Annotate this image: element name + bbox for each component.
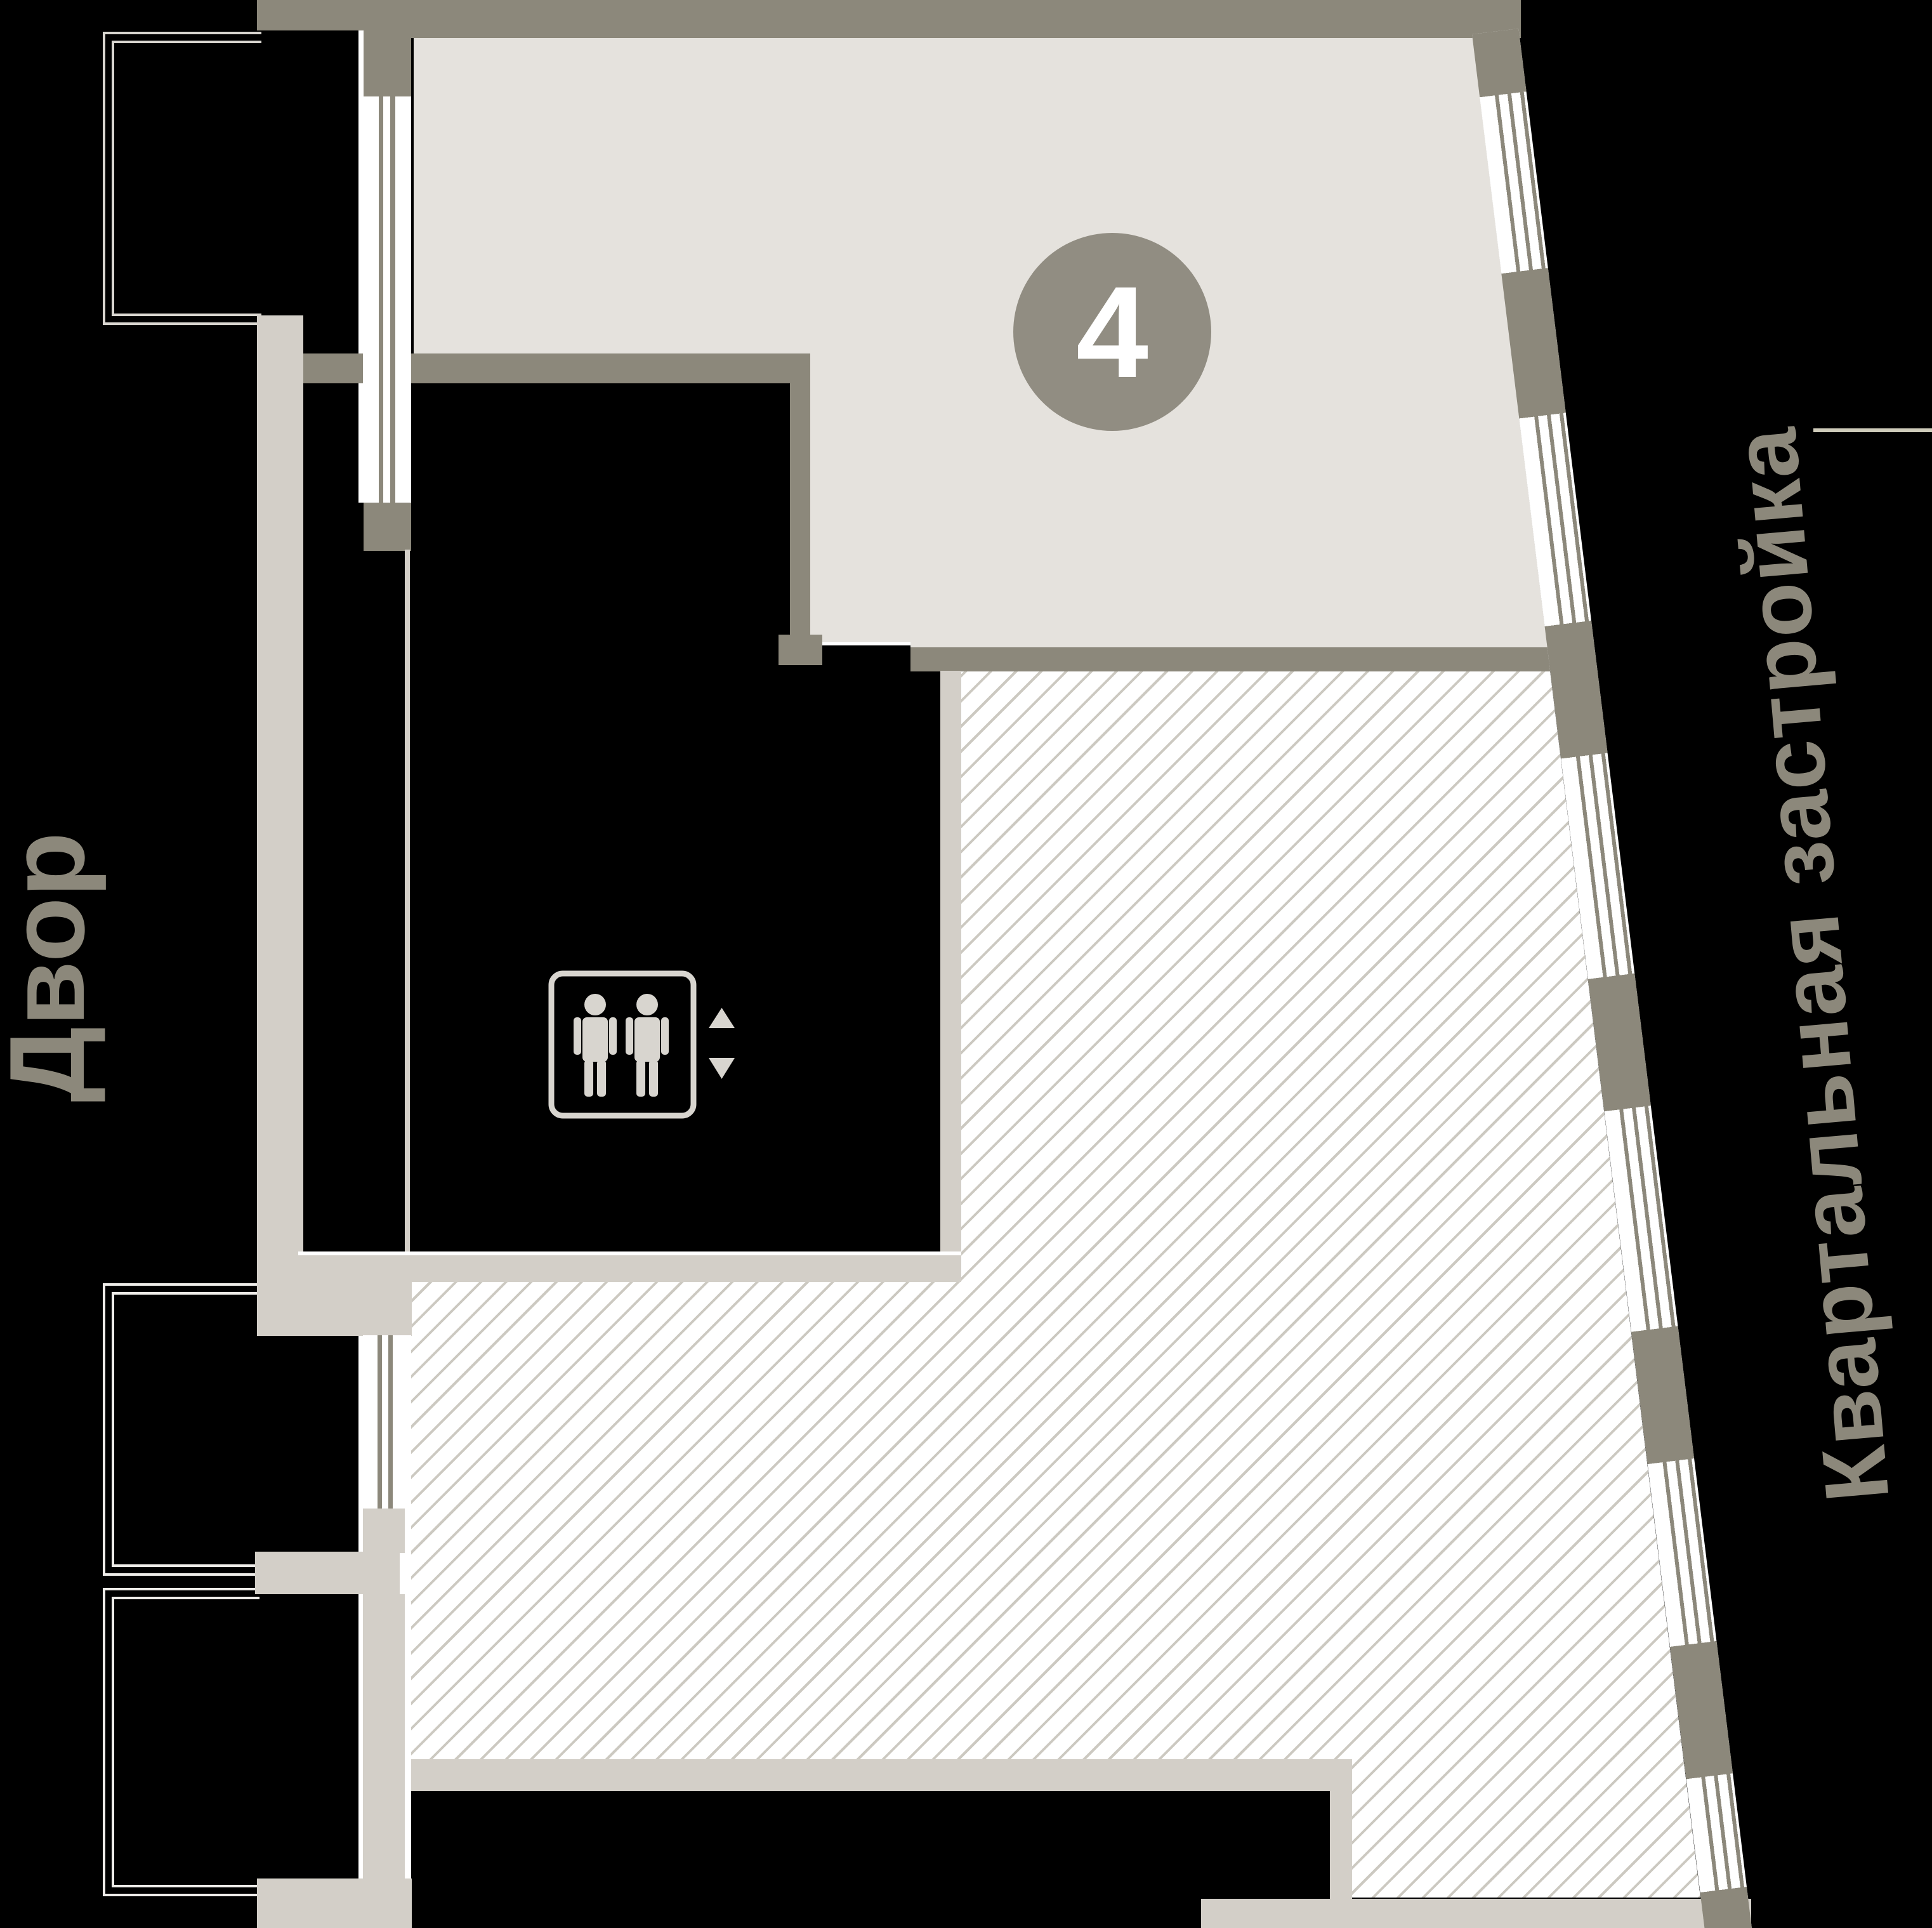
strip-pier-1: [363, 1509, 405, 1553]
junction-block-2: [255, 1552, 400, 1594]
core-top-wall: [257, 353, 810, 383]
lower-apartment-right-wall: [1330, 1791, 1352, 1900]
person-icon: [574, 994, 617, 1097]
lower-apartment-top-wall: [411, 1759, 1352, 1791]
person-icon: [626, 994, 669, 1097]
corridor-left-strip: [940, 671, 961, 1258]
apartment-bottom-wall: [910, 647, 1551, 671]
district-label: Квартальная застройка: [1714, 423, 1909, 1506]
accent-line: [1813, 428, 1932, 432]
floor-plan: 4 Двор Кварт: [0, 0, 1932, 1928]
core-right-wall-foot: [779, 635, 822, 665]
left-window-bottom: [363, 1335, 411, 1509]
common-area-hatch: [411, 671, 1769, 1898]
core-left-face-line: [405, 550, 410, 1255]
apartment-badge[interactable]: 4: [1013, 233, 1211, 431]
strip-pier-2: [363, 1594, 405, 1880]
room1-inner-outline: [112, 1292, 260, 1567]
down-arrow-icon: [709, 1058, 735, 1079]
core-bottom-hairline: [298, 1251, 961, 1255]
left-window-bottom-mullion-2: [388, 1335, 393, 1509]
window-bottom-pier: [364, 503, 411, 551]
room-bottom-left-1: [103, 1283, 260, 1576]
courtyard-label: Двор: [0, 836, 107, 1102]
room-bottom-left-2: [103, 1588, 260, 1896]
top-wall-thin: [257, 0, 366, 30]
window-top-pier: [364, 30, 411, 96]
apartment-number: 4: [1076, 267, 1148, 397]
bottom-right-wall: [1201, 1899, 1751, 1928]
up-arrow-icon: [709, 1008, 735, 1028]
room2-inner-outline: [112, 1597, 260, 1887]
left-wall: [257, 315, 303, 1304]
left-window-top-mullion-2: [390, 96, 395, 503]
core-right-wall: [790, 383, 810, 640]
left-window-top: [363, 96, 411, 503]
elevator-icon: [546, 965, 755, 1123]
apartment-step-hairline: [822, 642, 910, 645]
left-window-bottom-mullion-1: [378, 1335, 382, 1509]
balcony-top-left: [103, 32, 261, 325]
top-wall: [365, 0, 1521, 38]
junction-block-1: [257, 1282, 412, 1336]
elevator-frame-icon: [551, 974, 693, 1116]
left-window-top-mullion-1: [379, 96, 383, 503]
balcony-inner-outline: [112, 41, 261, 316]
junction-block-3: [257, 1878, 412, 1928]
apartment-area: [414, 38, 1549, 654]
